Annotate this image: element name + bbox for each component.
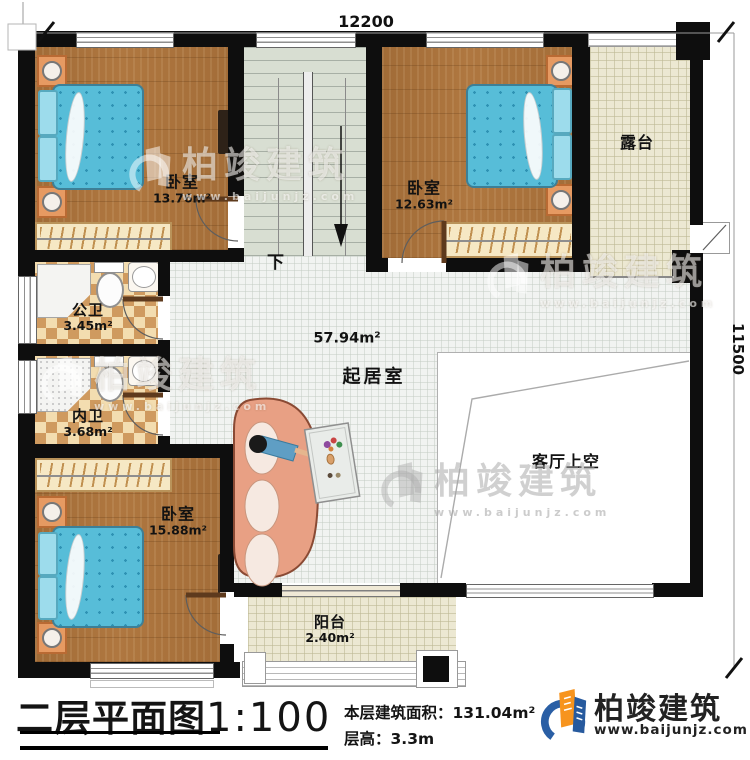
floor-area-line: 本层建筑面积：131.04m² — [344, 701, 535, 727]
wardrobe — [444, 222, 576, 258]
floor-info: 本层建筑面积：131.04m² 层高：3.3m — [344, 701, 535, 752]
wardrobe-pole — [446, 240, 574, 242]
room-label-void: 客厅上空 — [532, 453, 600, 471]
window — [18, 276, 37, 344]
public-bath-name: 公卫 — [63, 302, 112, 319]
floor-plan-canvas: 卧室 13.76m² 卧室 12.63m² 卧室 15.88m² 露台 公卫 3… — [0, 0, 750, 760]
lamp-icon — [551, 190, 571, 210]
stair-down-text: 下 — [267, 254, 285, 274]
pillow — [552, 134, 572, 180]
bedroom-tl-area: 13.76m² — [153, 192, 211, 206]
window — [90, 663, 214, 679]
bedroom-bl-name: 卧室 — [149, 506, 207, 524]
sink-basin — [132, 360, 156, 382]
sink — [128, 356, 160, 386]
wall-living-south-a — [234, 583, 282, 597]
stair-guide-line — [278, 78, 279, 256]
stair-guide-line — [345, 78, 346, 256]
window — [426, 32, 544, 48]
room-label-terrace: 露台 — [620, 134, 654, 152]
wardrobe — [35, 458, 172, 492]
void-name: 客厅上空 — [532, 453, 600, 471]
door-opening — [158, 392, 170, 436]
wall-living-south-b — [400, 583, 466, 597]
wall-living-south-c — [652, 583, 703, 597]
lamp-icon — [42, 61, 62, 81]
wall-bedroom-bl-north — [18, 444, 234, 458]
terrace-edge-line — [590, 276, 674, 278]
room-label-bedroom-tl: 卧室 13.76m² — [153, 174, 211, 207]
pillow — [38, 532, 58, 576]
room-label-bedroom-bl: 卧室 15.88m² — [149, 506, 207, 539]
title-underline — [20, 731, 220, 734]
window-sill — [90, 680, 214, 688]
nightstand — [37, 496, 67, 528]
door-opening — [228, 196, 244, 248]
wardrobe-pole — [37, 238, 170, 240]
wall-stair-right — [366, 31, 382, 270]
wall-terrace-corner — [672, 250, 703, 283]
nightstand — [37, 55, 67, 87]
stair-down-label: 下 — [267, 254, 285, 274]
bed — [466, 84, 558, 188]
toilet-bowl — [96, 366, 124, 402]
window — [76, 32, 174, 48]
terrace-floor — [590, 44, 690, 278]
living-area-label: 57.94m² — [313, 331, 380, 348]
terrace-door-swing — [702, 222, 730, 254]
public-bath-area: 3.45m² — [63, 319, 112, 333]
door-opening — [690, 225, 703, 253]
dimension-width: 12200 — [338, 12, 394, 31]
stair-center-rail — [303, 72, 313, 256]
room-label-public-bath: 公卫 3.45m² — [63, 302, 112, 334]
brand-site: www.baijunjz.com — [594, 722, 748, 738]
room-label-balcony: 阳台 2.40m² — [305, 614, 354, 646]
lamp-icon — [42, 628, 62, 648]
floor-area-label: 本层建筑面积： — [344, 704, 453, 722]
floor-height-label: 层高： — [344, 730, 391, 748]
lamp-icon — [42, 502, 62, 522]
door-opening — [220, 592, 234, 644]
window — [18, 360, 37, 414]
door-opening — [158, 296, 170, 340]
bedroom-tr-area: 12.63m² — [395, 198, 453, 212]
brand-logo-icon — [540, 684, 590, 746]
room-label-living: 起居室 — [343, 368, 406, 389]
wall-bath-divider — [18, 344, 170, 356]
sink-basin — [132, 266, 156, 288]
pillow — [38, 136, 58, 182]
balcony-name: 阳台 — [305, 614, 354, 631]
wall-right — [690, 31, 703, 597]
lamp-icon — [42, 192, 62, 212]
floor-area-value: 131.04m² — [453, 704, 536, 722]
wall-bedroom-tl-south — [18, 250, 244, 262]
living-name: 起居室 — [343, 368, 406, 389]
room-label-bedroom-tr: 卧室 12.63m² — [395, 180, 453, 213]
window — [466, 584, 654, 598]
sink — [128, 262, 160, 292]
title-underline — [20, 746, 328, 750]
corner-column — [676, 22, 710, 60]
inner-bath-area: 3.68m² — [63, 425, 112, 439]
bedroom-tl-name: 卧室 — [153, 174, 211, 192]
pillow — [38, 90, 58, 136]
plan-scale: 1:100 — [206, 695, 331, 741]
floor-height-line: 层高：3.3m — [344, 727, 535, 753]
balcony-area: 2.40m² — [305, 631, 354, 645]
door-opening — [388, 258, 446, 272]
living-area: 57.94m² — [313, 331, 380, 348]
pillow — [552, 88, 572, 134]
balcony-post-left — [244, 652, 266, 684]
window — [256, 32, 356, 48]
room-label-inner-bath: 内卫 3.68m² — [63, 408, 112, 440]
wall-terrace-left — [572, 31, 590, 272]
wardrobe-pole — [37, 475, 170, 477]
dimension-height: 11500 — [729, 323, 747, 375]
bedroom-bl-area: 15.88m² — [149, 524, 207, 538]
inner-bath-name: 内卫 — [63, 408, 112, 425]
pillow — [38, 576, 58, 620]
terrace-railing-top — [588, 33, 678, 47]
bedroom-tr-name: 卧室 — [395, 180, 453, 198]
lamp-icon — [551, 61, 571, 81]
sliding-door — [282, 585, 400, 597]
terrace-name: 露台 — [620, 134, 654, 152]
floor-height-value: 3.3m — [391, 730, 435, 748]
nightstand — [37, 186, 67, 218]
balcony-column — [423, 656, 449, 682]
